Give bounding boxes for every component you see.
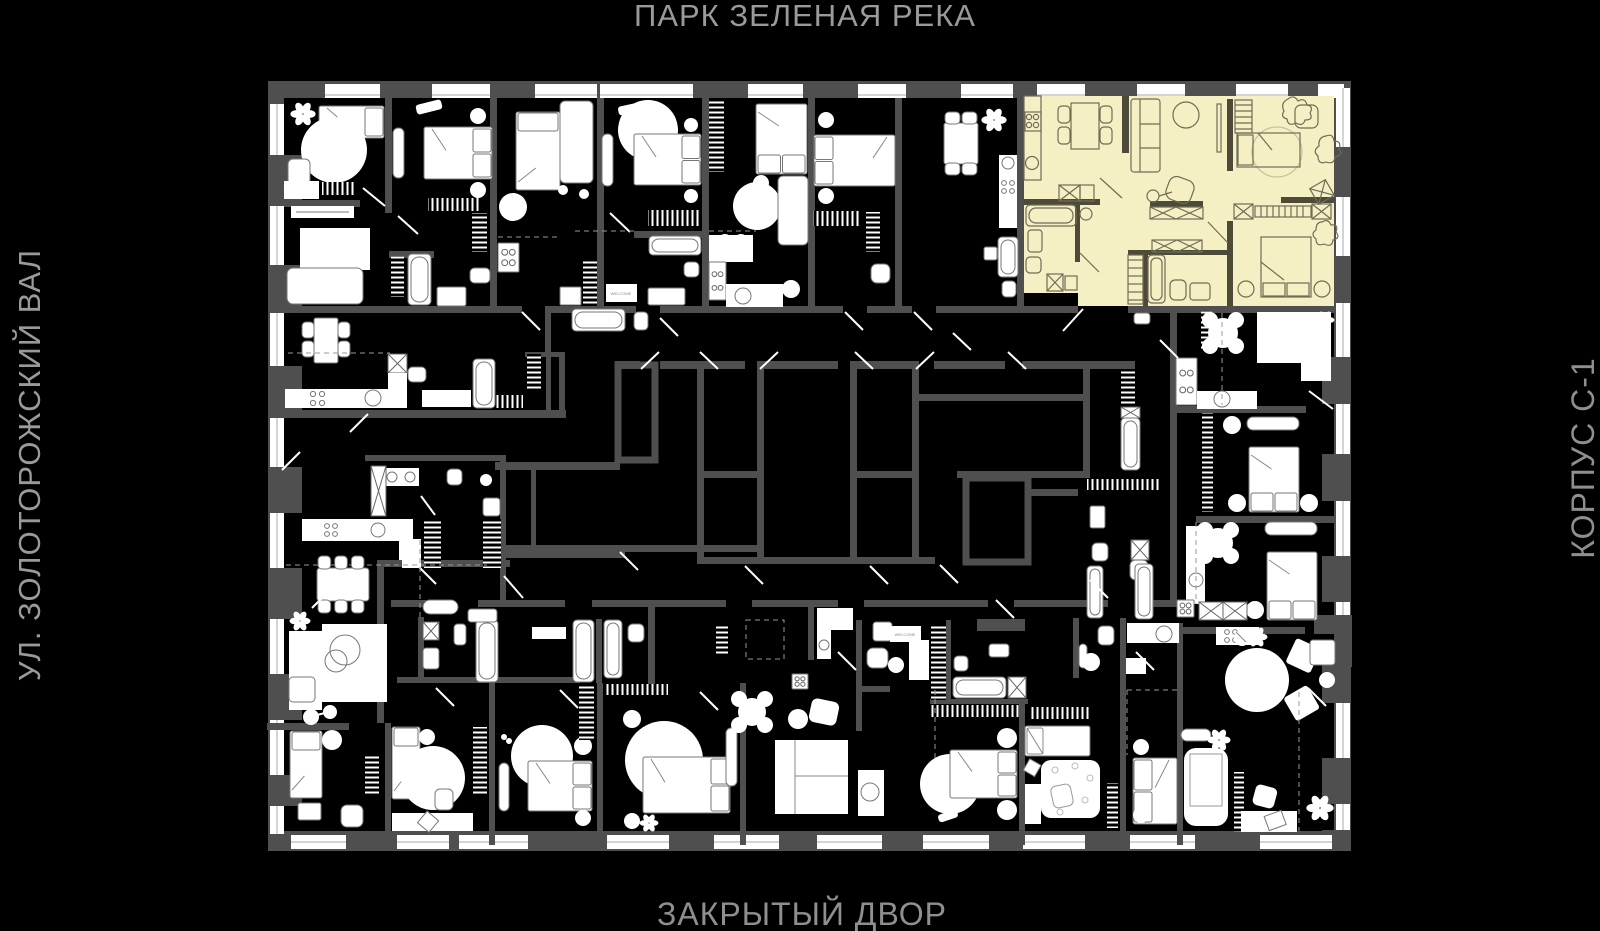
svg-text:ПАРК ЗЕЛЕНАЯ РЕКА: ПАРК ЗЕЛЕНАЯ РЕКА	[634, 0, 976, 33]
svg-text:ЗАКРЫТЫЙ ДВОР: ЗАКРЫТЫЙ ДВОР	[657, 896, 947, 931]
svg-text:КОРПУС С-1: КОРПУС С-1	[1565, 357, 1600, 558]
svg-text:WELCOME: WELCOME	[895, 632, 916, 637]
svg-text:WELCOME: WELCOME	[611, 291, 632, 296]
svg-text:УЛ. ЗОЛОТОРОЖСКИЙ ВАЛ: УЛ. ЗОЛОТОРОЖСКИЙ ВАЛ	[11, 249, 47, 681]
